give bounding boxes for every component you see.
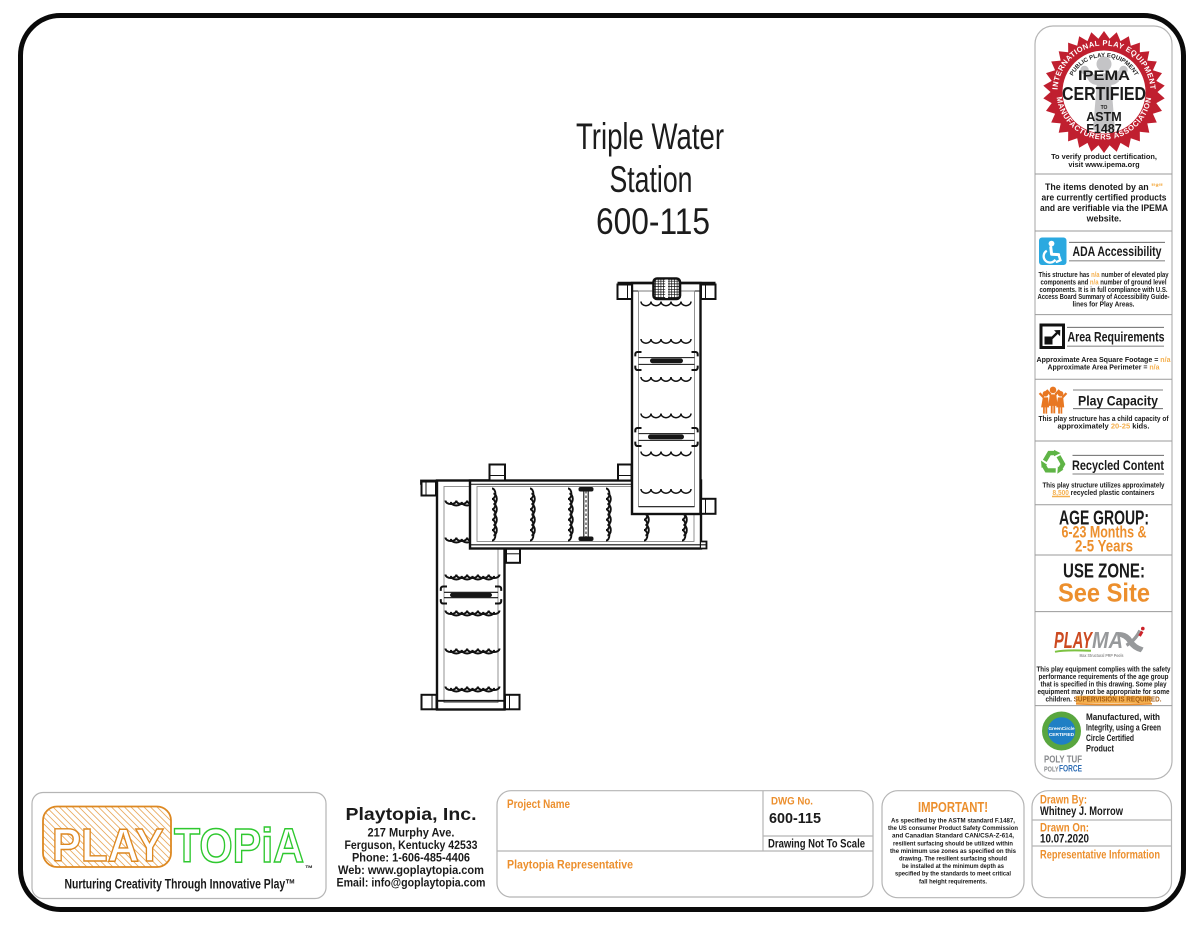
svg-text:Playtopia, Inc.: Playtopia, Inc. [346, 804, 477, 824]
svg-text:FORCE: FORCE [1059, 764, 1082, 775]
svg-text:ADA Accessibility: ADA Accessibility [1073, 244, 1162, 259]
svg-text:the minimum use zones as speci: the minimum use zones as specified on th… [890, 848, 1016, 855]
svg-text:Project Name: Project Name [507, 799, 570, 811]
svg-text:Manufactured, with: Manufactured, with [1086, 712, 1160, 722]
svg-text:POLY: POLY [1044, 767, 1059, 774]
svg-text:Circle Certified: Circle Certified [1086, 733, 1134, 743]
svg-text:drawing. The resilient surfaci: drawing. The resilient surfacing should [899, 856, 1007, 863]
svg-text:Play Capacity: Play Capacity [1078, 394, 1158, 409]
svg-text:DWG No.: DWG No. [771, 796, 813, 808]
svg-text:approximately 20-25 kids.: approximately 20-25 kids. [1058, 422, 1150, 431]
svg-text:CERTIFIED: CERTIFIED [1062, 84, 1146, 104]
svg-text:PLAY: PLAY [1054, 627, 1094, 653]
svg-text:8,500 recycled plastic contain: 8,500 recycled plastic containers [1053, 488, 1155, 497]
svg-text:Representative Information: Representative Information [1040, 850, 1160, 862]
svg-text:Integrity, using a Green: Integrity, using a Green [1086, 723, 1161, 733]
svg-text:Nurturing Creativity Through I: Nurturing Creativity Through Innovative … [65, 877, 296, 892]
svg-text:™: ™ [305, 864, 313, 873]
svg-text:2-5 Years: 2-5 Years [1075, 538, 1133, 556]
svg-text:Max Structural PRP Pools: Max Structural PRP Pools [1080, 653, 1124, 659]
svg-text:Triple Water: Triple Water [576, 116, 724, 157]
svg-text:Recycled Content: Recycled Content [1072, 458, 1164, 473]
svg-text:and Canadian Standard CAN/CSA-: and Canadian Standard CAN/CSA-Z-614, [892, 833, 1014, 840]
svg-text:600-115: 600-115 [769, 810, 821, 827]
svg-text:The items denoted by an "*": The items denoted by an "*" [1045, 182, 1163, 192]
svg-text:Whitney J. Morrow: Whitney J. Morrow [1040, 804, 1124, 818]
svg-text:F1487: F1487 [1086, 122, 1121, 136]
svg-text:and are verifiable via the IPE: and are verifiable via the IPEMA [1040, 203, 1169, 213]
svg-text:IMPORTANT!: IMPORTANT! [918, 800, 988, 816]
svg-text:600-115: 600-115 [596, 201, 710, 242]
svg-text:specified by the standards to: specified by the standards to meet criti… [895, 871, 1011, 878]
svg-text:IPEMA: IPEMA [1078, 68, 1130, 83]
svg-text:GreenCircle: GreenCircle [1048, 726, 1074, 731]
svg-text:10.07.2020: 10.07.2020 [1040, 832, 1089, 846]
svg-text:Email: info@goplaytopia.com: Email: info@goplaytopia.com [337, 876, 486, 890]
svg-text:visit www.ipema.org: visit www.ipema.org [1068, 160, 1140, 169]
svg-text:resilient surfacing should be: resilient surfacing should be utilized w… [893, 840, 1013, 847]
svg-text:Approximate Area Perimeter = n: Approximate Area Perimeter = n/a [1048, 362, 1161, 371]
svg-text:the US consumer Product Safety: the US consumer Product Safety Commissio… [888, 825, 1018, 832]
svg-text:See Site: See Site [1058, 578, 1150, 608]
svg-text:children. SUPERVISION IS REQUI: children. SUPERVISION IS REQUIRED. [1046, 695, 1162, 704]
svg-text:website.: website. [1086, 214, 1122, 224]
svg-text:fall height requirements.: fall height requirements. [919, 878, 987, 885]
svg-text:Product: Product [1086, 744, 1114, 754]
svg-text:TOPiA: TOPiA [174, 820, 304, 873]
svg-text:CERTIFIED: CERTIFIED [1049, 732, 1075, 738]
svg-text:are currently certified produc: are currently certified products [1042, 193, 1167, 203]
svg-text:Drawing Not To Scale: Drawing Not To Scale [768, 837, 865, 851]
svg-text:be installed at the minimum de: be installed at the minimum depth as [902, 863, 1004, 870]
svg-text:Area Requirements: Area Requirements [1068, 330, 1165, 345]
svg-text:Playtopia Representative: Playtopia Representative [507, 860, 633, 872]
svg-text:As specified by the ASTM stand: As specified by the ASTM standard F.1487… [891, 818, 1015, 825]
svg-text:lines for Play Areas.: lines for Play Areas. [1073, 300, 1135, 309]
svg-text:PLAY: PLAY [52, 819, 164, 871]
svg-text:MA: MA [1092, 627, 1123, 653]
svg-text:Station: Station [610, 159, 693, 200]
